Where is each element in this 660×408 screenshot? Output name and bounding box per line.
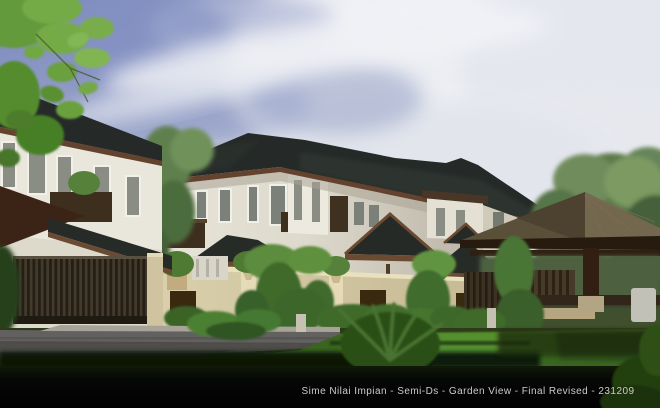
svg-text:Sime Nilai Impian - Semi-Ds -: Sime Nilai Impian - Semi-Ds - Garden Vie… [302, 386, 635, 397]
